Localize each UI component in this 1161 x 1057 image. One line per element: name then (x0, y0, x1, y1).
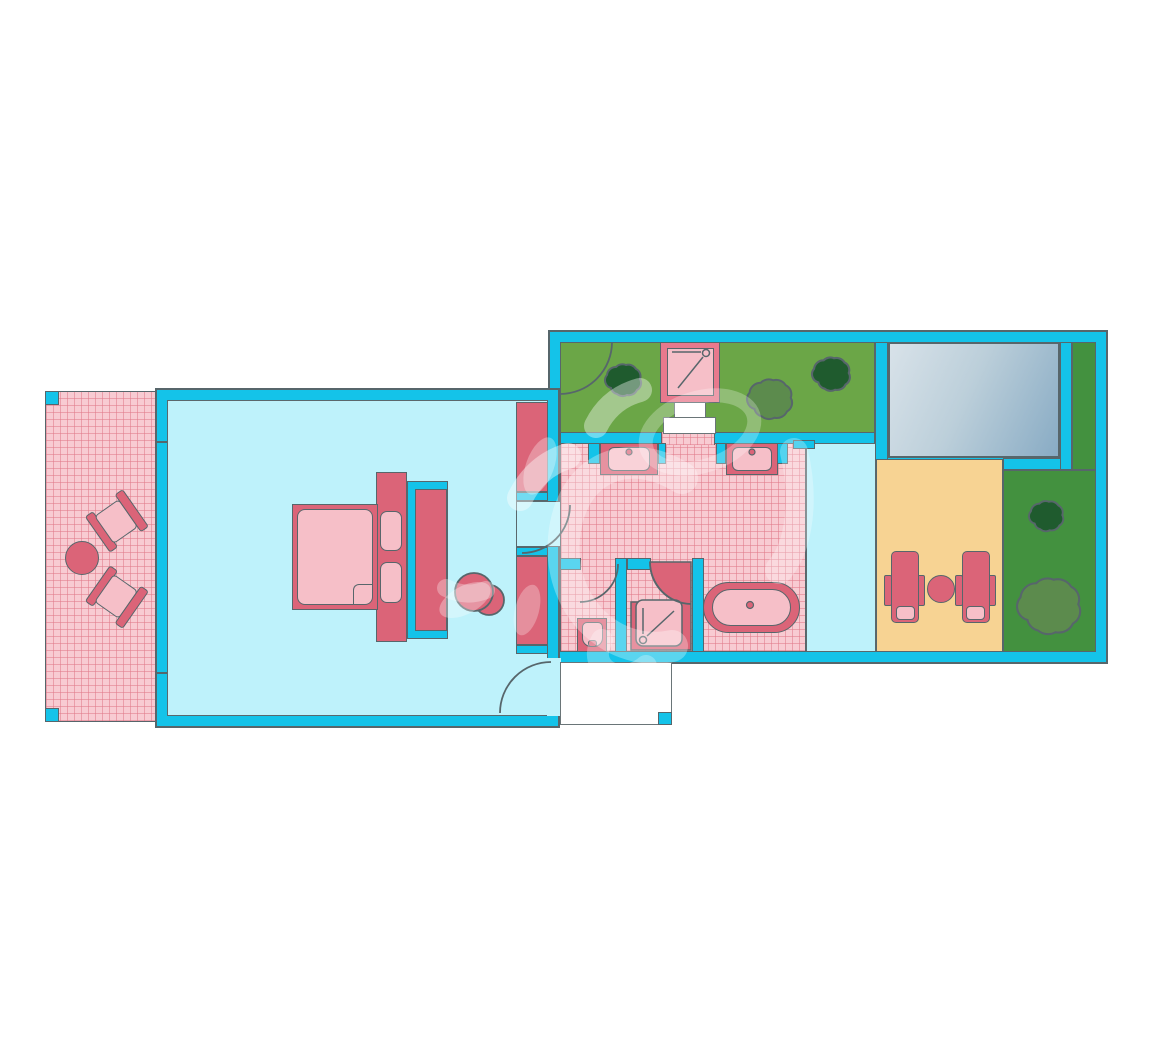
corridor-floor (806, 443, 876, 652)
pool (888, 342, 1060, 458)
deck-table-icon (927, 575, 955, 603)
closet-end-wall (516, 547, 548, 556)
wardrobe-interior (415, 489, 447, 631)
bathroom-door-niche (516, 501, 561, 547)
vanity-stub-wall (716, 443, 726, 464)
closet-end-wall (516, 645, 548, 654)
floor-plan-page (0, 0, 1161, 1057)
porch-post (658, 712, 672, 725)
terrace-post-top (45, 391, 59, 405)
vanity-stub-wall (658, 443, 666, 464)
sun-lounger-pillow (896, 606, 915, 620)
vanity-stub-wall (588, 443, 600, 464)
toilet-drain (588, 640, 597, 647)
bed-sheet-fold (353, 584, 372, 604)
wc-shower-divider-wall (615, 558, 627, 652)
lawn-strip-right-of-pool (1072, 342, 1096, 470)
sun-lounger-pillow (966, 606, 985, 620)
window-tick-icon (155, 441, 167, 443)
entrance-door-opening (547, 658, 561, 716)
pool-bottom-wall (1003, 458, 1061, 470)
vanity-sink-icon (608, 447, 650, 471)
pool-right-wall (1060, 342, 1072, 470)
closet-end-wall (516, 492, 548, 501)
pool-left-wall (875, 342, 888, 460)
entrance-porch (560, 662, 672, 725)
pillow-icon (380, 511, 402, 551)
window-tick-icon (155, 672, 167, 674)
pillow-icon (380, 562, 402, 603)
terrace-floor (45, 391, 167, 722)
closet-icon (516, 556, 548, 645)
outdoor-shower-tray (667, 348, 714, 396)
wc-top-wall (560, 558, 581, 570)
closet-icon (516, 402, 548, 492)
vanity-sink-icon (732, 447, 772, 471)
steps-icon (663, 417, 716, 434)
shower-top-wall (627, 558, 651, 570)
terrace-post-bottom (45, 708, 59, 722)
terrace-table-icon (65, 541, 99, 575)
lawn (1003, 470, 1096, 652)
bathtub-interior (712, 589, 791, 626)
headboard-icon (376, 472, 407, 642)
corridor-entry-stub-wall (793, 440, 815, 449)
